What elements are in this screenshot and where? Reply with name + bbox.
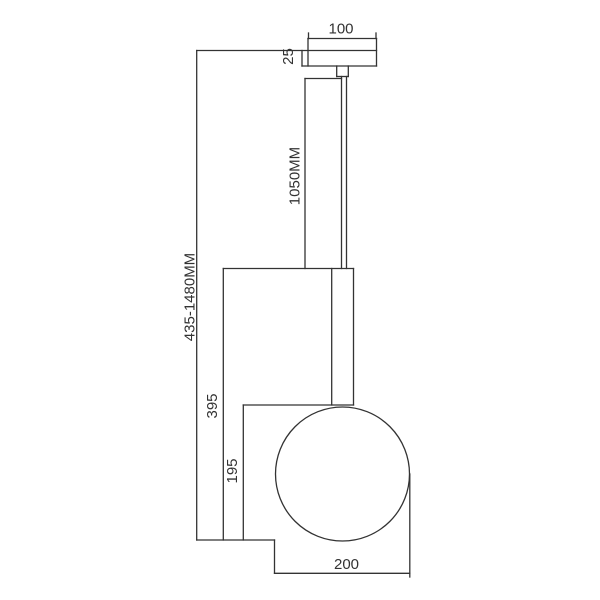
- dim-label-shade-drop: 195: [224, 458, 241, 483]
- lamp-body-cylinder: [223, 269, 353, 406]
- dim-label-globe-diameter: 200: [334, 556, 359, 573]
- dim-shade-drop: 195: [224, 405, 243, 540]
- dim-label-rod-length: 1050MM: [287, 147, 304, 205]
- dim-label-body-height: 395: [204, 393, 221, 418]
- pendant-lamp-diagram: 1050MM 435-1480MM 395 195 200 100 25: [0, 0, 600, 600]
- dim-label-canopy-width: 100: [328, 21, 353, 38]
- dim-rod-length: 1050MM: [287, 79, 342, 269]
- dim-body-height: 395: [204, 269, 223, 541]
- suspension-rod: [337, 66, 349, 269]
- dim-label-overall-height: 435-1480MM: [182, 253, 199, 341]
- dimension-drawing: 1050MM 435-1480MM 395 195 200 100 25: [0, 0, 600, 600]
- dim-label-canopy-height: 25: [280, 48, 297, 65]
- dim-globe-diameter: 200: [275, 474, 410, 577]
- glass-globe: [276, 407, 410, 541]
